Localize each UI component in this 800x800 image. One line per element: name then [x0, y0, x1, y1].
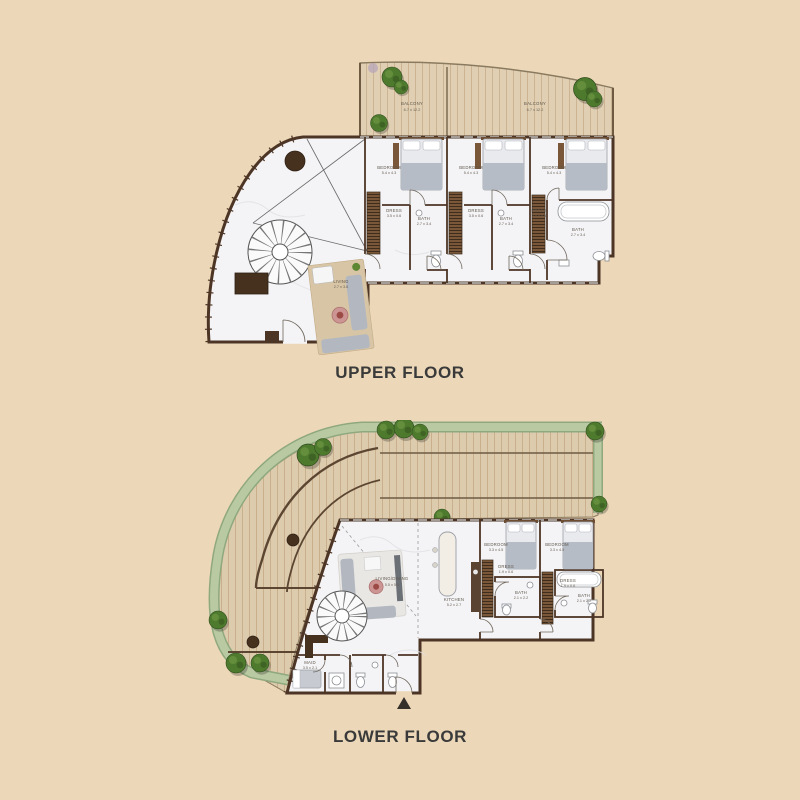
room-label: DRESS: [531, 208, 547, 213]
round-planter-icon: [287, 534, 299, 546]
room-dims: 3.5 x 0.6: [387, 214, 402, 218]
washer-icon: [329, 673, 344, 688]
shrub-icon: [368, 63, 378, 73]
room-label: BEDROOM: [377, 165, 401, 170]
room-label: KITCHEN: [444, 597, 464, 602]
round-planter-icon: [285, 151, 305, 171]
room-label: BATH: [515, 590, 527, 595]
room-label: BATH: [572, 227, 584, 232]
room-dims: 1.9 x 0.6: [561, 584, 576, 588]
kitchen-counter: [471, 562, 480, 612]
entrance-arrow-icon: [397, 697, 411, 709]
room-label: BEDROOM: [545, 542, 569, 547]
room-dims: 5.5 x 5.8: [385, 583, 400, 587]
room-label: BEDROOM: [542, 165, 566, 170]
room-label: LIVING: [333, 279, 349, 284]
room-label: BATH: [578, 593, 590, 598]
upper-balcony-left-dims: 6.7 x 12.2: [404, 108, 421, 112]
room-dims: 2.7 x 3.4: [571, 233, 586, 237]
floorplan-page: { "background": "#ecd8b8", "upper": { "t…: [0, 0, 800, 800]
kitchen-island: [439, 532, 456, 596]
room-dims: 2.7 x 3.4: [417, 222, 432, 226]
square-planter-icon: [235, 273, 268, 294]
room-dims: 2.7 x 3.4: [499, 222, 514, 226]
room-dims: 3.5 x 2.1: [303, 666, 318, 670]
upper-balcony: BALCONY 6.7 x 12.2 BALCONY 6.7 x 12.2: [360, 62, 613, 137]
room-label: BATH: [500, 216, 512, 221]
room-dims: 2.7 x 3.8: [334, 285, 349, 289]
upper-beds: [399, 137, 609, 190]
upper-balcony-right-label: BALCONY: [524, 101, 546, 106]
room-label: BEDROOM: [484, 542, 508, 547]
room-dims: 5.4 x 4.3: [382, 171, 397, 175]
room-dims: 2.1 x 2.2: [514, 596, 529, 600]
room-label: BEDROOM: [459, 165, 483, 170]
room-dims: 2.1 x 2.2: [577, 599, 592, 603]
room-dims: 1.9 x 0.6: [499, 570, 514, 574]
lower-spiral-stair: [317, 591, 367, 641]
upper-floor-plan: BALCONY 6.7 x 12.2 BALCONY 6.7 x 12.2: [195, 55, 615, 355]
room-label: DRESS: [468, 208, 484, 213]
room-label: DRESS: [498, 564, 514, 569]
room-label: MAID: [304, 660, 316, 665]
room-dims: 5.4 x 4.3: [464, 171, 479, 175]
room-label: LIVING/DINING: [376, 576, 409, 581]
room-dims: 5.2 x 2.7: [447, 603, 462, 607]
upper-balcony-right-dims: 6.7 x 12.2: [527, 108, 544, 112]
upper-balcony-left-label: BALCONY: [401, 101, 423, 106]
room-dims: 3.5 x 0.6: [469, 214, 484, 218]
room-dims: 5.4 x 4.3: [547, 171, 562, 175]
lower-maid-room: [293, 670, 321, 688]
room-label: DRESS: [560, 578, 576, 583]
entry-closet: [265, 331, 279, 342]
room-dims: 3.5 x 0.6: [532, 214, 547, 218]
upper-floor-title: UPPER FLOOR: [0, 363, 800, 383]
lower-floor-plan: LIVING/DINING 5.5 x 5.8 KITCHEN 5.2 x 2.…: [190, 420, 620, 710]
lower-floor-title: LOWER FLOOR: [0, 727, 800, 747]
room-label: BATH: [418, 216, 430, 221]
upper-living-furniture: [308, 259, 375, 355]
room-label: DRESS: [386, 208, 402, 213]
room-dims: 3.3 x 4.5: [550, 548, 565, 552]
round-planter-icon: [247, 636, 259, 648]
room-dims: 3.3 x 4.5: [489, 548, 504, 552]
